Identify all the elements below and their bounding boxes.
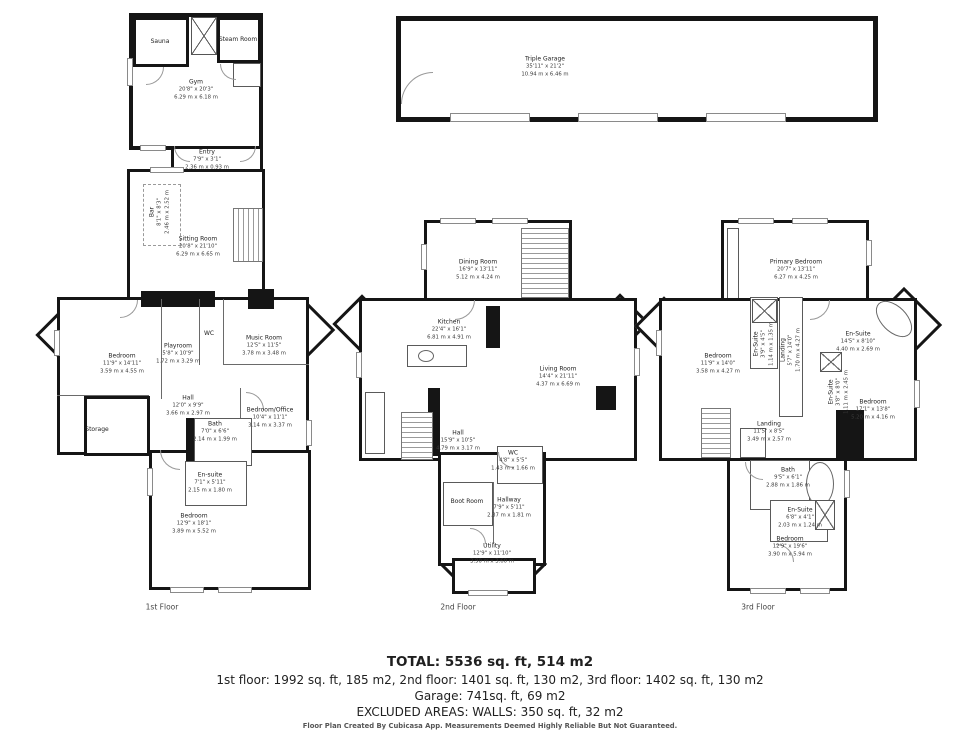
window [468, 590, 508, 596]
wardrobe [727, 228, 739, 308]
window [800, 588, 830, 594]
interior-wall [161, 299, 162, 399]
window [866, 240, 872, 266]
garage-door [706, 113, 786, 122]
excluded-area-text: EXCLUDED AREAS: WALLS: 350 sq. ft, 32 m2 [0, 705, 980, 719]
garage-door [578, 113, 658, 122]
disclaimer-text: Floor Plan Created By Cubicasa App. Meas… [0, 722, 980, 730]
stairs [521, 228, 569, 298]
window [792, 218, 828, 224]
sink [418, 350, 434, 362]
closet-x [820, 352, 842, 372]
floor-caption: 2nd Floor [440, 603, 475, 612]
floor-plan-canvas: SaunaSteam RoomGym20'8" x 20'3"6.29 m x … [0, 0, 980, 734]
wall-block [836, 410, 864, 458]
floor-caption: 3rd Floor [741, 603, 775, 612]
window [150, 167, 184, 173]
window [750, 588, 786, 594]
interior-wall [223, 299, 224, 365]
wall-steam-room [217, 17, 261, 63]
window [440, 218, 476, 224]
area-summary: TOTAL: 5536 sq. ft, 514 m2 1st floor: 19… [0, 654, 980, 730]
window [140, 145, 166, 151]
kitchen-island [407, 345, 467, 367]
stairs [233, 208, 263, 262]
wc-small [740, 428, 766, 458]
window [147, 468, 153, 496]
garage-door [450, 113, 530, 122]
kitchen-counter [365, 392, 385, 454]
window [170, 587, 204, 593]
closet [233, 63, 261, 87]
window [914, 380, 920, 408]
window [127, 58, 133, 86]
wall-sauna [133, 17, 189, 67]
floor-caption: 1st Floor [146, 603, 179, 612]
chimney-block [248, 289, 274, 309]
interior-wall [57, 395, 149, 396]
window [492, 218, 528, 224]
wall-block [486, 306, 500, 348]
window [356, 352, 362, 378]
closet-x [815, 500, 835, 530]
floors-area-text: 1st floor: 1992 sq. ft, 185 m2, 2nd floo… [0, 673, 980, 687]
wall-storage [84, 396, 150, 456]
garage-area-text: Garage: 741sq. ft, 69 m2 [0, 689, 980, 703]
window [738, 218, 774, 224]
window [421, 244, 427, 270]
interior-wall [199, 299, 200, 365]
wall-garage [396, 16, 878, 122]
bar-partition [143, 184, 181, 246]
landing-strip [779, 297, 803, 417]
chimney-block [141, 291, 215, 307]
fireplace [596, 386, 616, 410]
window [54, 330, 60, 356]
closet-x [752, 299, 777, 323]
total-area-text: TOTAL: 5536 sq. ft, 514 m2 [0, 654, 980, 670]
shaft-x [191, 17, 217, 55]
stairs [701, 408, 731, 458]
window [218, 587, 252, 593]
bath-room [194, 418, 252, 466]
window [634, 348, 640, 376]
ensuite-room [185, 461, 247, 506]
interior-wall [493, 482, 494, 544]
window [656, 330, 662, 356]
wall-bay [452, 558, 536, 594]
interior-wall [223, 364, 309, 365]
window [306, 420, 312, 446]
window [844, 470, 850, 498]
stairs [401, 412, 433, 460]
boot-room [443, 482, 493, 526]
